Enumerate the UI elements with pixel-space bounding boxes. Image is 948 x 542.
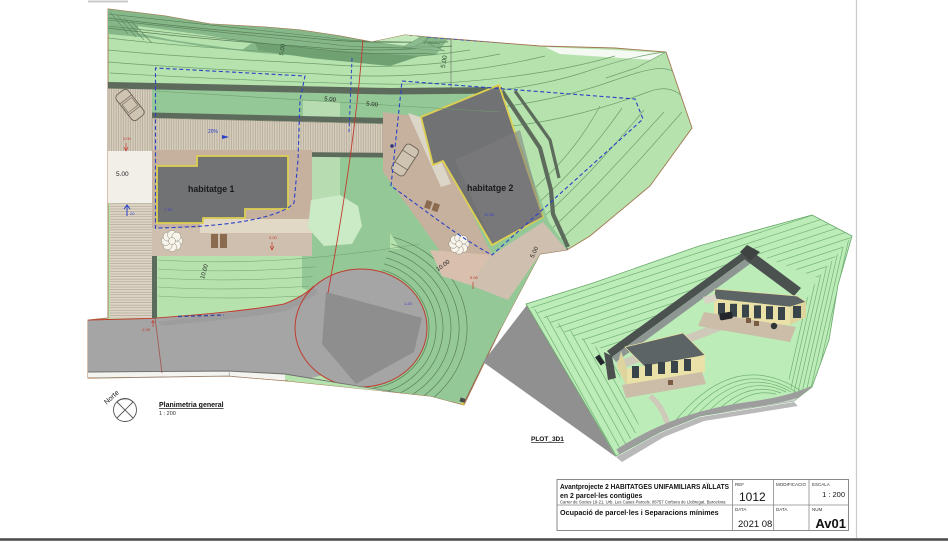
svg-text:1 : 200: 1 : 200 [822,490,845,499]
svg-text:PLOT_3D1: PLOT_3D1 [531,436,564,443]
svg-text:-4.05: -4.05 [141,327,151,332]
svg-text:0.00: 0.00 [123,136,132,141]
svg-text:5.00: 5.00 [366,102,379,109]
svg-text:DATA: DATA [735,507,746,512]
svg-text:Av01: Av01 [815,516,846,531]
svg-text:Avantprojecte 2 HABITATGES UN: Avantprojecte 2 HABITATGES UNIFAMILIARS … [560,483,729,491]
svg-text:REF: REF [735,482,744,487]
svg-text:habitatge 1: habitatge 1 [188,184,235,194]
svg-text:MODIFICACIO: MODIFICACIO [776,482,806,487]
svg-text:1012: 1012 [739,490,766,504]
svg-text:Planimetria general: Planimetria general [159,402,224,409]
svg-text:5.00: 5.00 [116,171,129,178]
svg-text:Carrer de Socies 19-21. Urb. L: Carrer de Socies 19-21. Urb. Les Cases P… [560,500,726,505]
svg-text:7.30: 7.30 [164,207,173,212]
svg-text:12.30: 12.30 [484,212,495,217]
svg-text:habitatge 2: habitatge 2 [467,183,514,193]
svg-text:ESCALA: ESCALA [812,482,830,487]
svg-text:1 : 200: 1 : 200 [159,411,176,417]
svg-text:2021 08: 2021 08 [738,519,772,530]
svg-text:5.06: 5.06 [470,275,479,280]
svg-text:20%: 20% [208,129,219,135]
svg-text:5.00: 5.00 [324,97,337,104]
svg-text:Ocupació de parcel·les i Separ: Ocupació de parcel·les i Separacions mín… [560,508,719,517]
svg-text:0.00: 0.00 [269,235,278,240]
svg-text:1.20: 1.20 [404,301,413,306]
svg-text:NUM: NUM [812,507,822,512]
svg-text:DATA: DATA [776,507,787,512]
svg-text:20: 20 [130,211,135,216]
